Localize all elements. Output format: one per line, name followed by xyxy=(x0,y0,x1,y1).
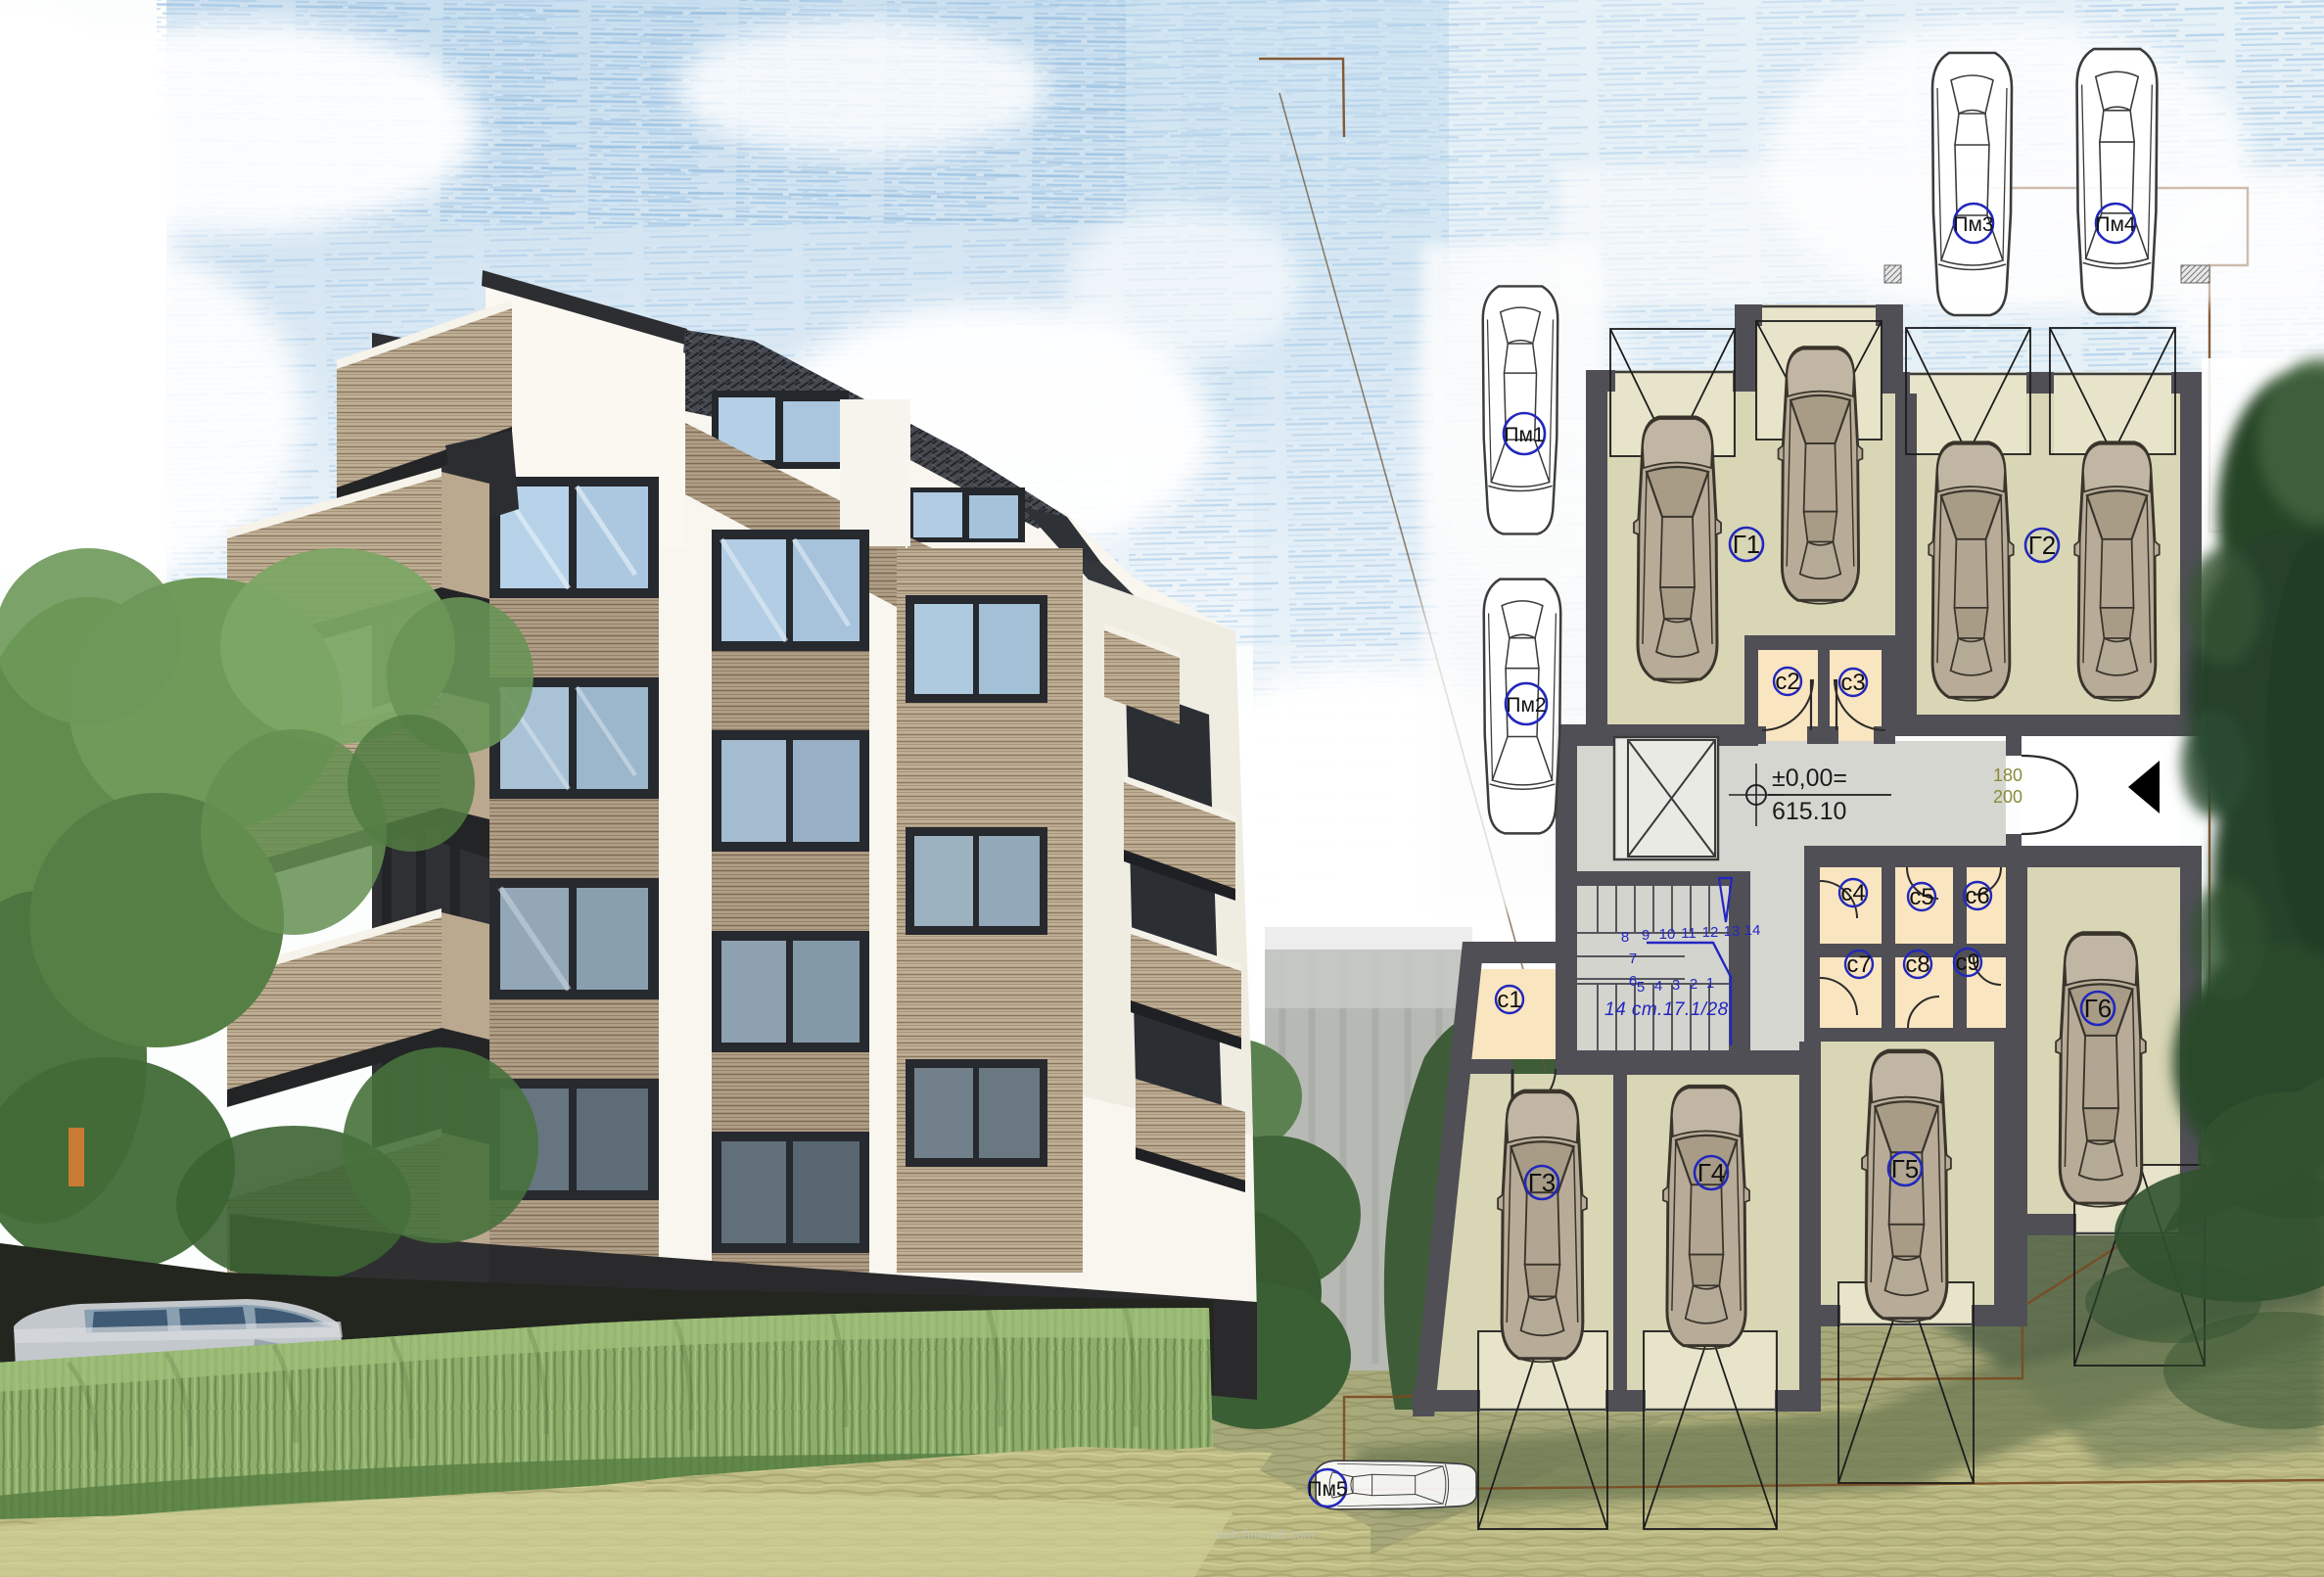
svg-text:Г5: Г5 xyxy=(1891,1154,1920,1183)
svg-text:с3: с3 xyxy=(1840,670,1865,696)
svg-text:7: 7 xyxy=(1629,951,1637,967)
svg-text:9: 9 xyxy=(1642,927,1650,944)
svg-text:с1: с1 xyxy=(1497,987,1521,1013)
svg-text:Пм1: Пм1 xyxy=(1504,424,1544,446)
svg-text:10: 10 xyxy=(1659,926,1676,943)
svg-text:4: 4 xyxy=(1654,978,1662,995)
svg-text:8: 8 xyxy=(1621,929,1629,946)
svg-text:с9: с9 xyxy=(1955,950,1979,976)
svg-text:2: 2 xyxy=(1690,976,1697,993)
svg-text:Пм2: Пм2 xyxy=(1506,694,1546,717)
svg-text:14 ст.17.1/28: 14 ст.17.1/28 xyxy=(1604,999,1729,1020)
svg-text:180: 180 xyxy=(1993,765,2022,785)
svg-text:Г6: Г6 xyxy=(2084,994,2113,1023)
svg-text:13: 13 xyxy=(1724,923,1741,940)
svg-text:Пм5: Пм5 xyxy=(1307,1478,1347,1501)
svg-text:с7: с7 xyxy=(1846,951,1871,978)
svg-text:3: 3 xyxy=(1672,977,1680,994)
svg-text:Г4: Г4 xyxy=(1697,1158,1726,1187)
svg-text:с8: с8 xyxy=(1905,951,1929,978)
svg-text:Г1: Г1 xyxy=(1733,530,1761,559)
svg-text:с4: с4 xyxy=(1840,880,1865,906)
svg-text:Г3: Г3 xyxy=(1528,1168,1557,1197)
svg-text:5: 5 xyxy=(1637,979,1645,996)
svg-text:1: 1 xyxy=(1706,975,1714,992)
svg-text:с6: с6 xyxy=(1965,883,1989,909)
svg-text:с5: с5 xyxy=(1909,884,1933,910)
svg-text:Пм4: Пм4 xyxy=(2095,213,2136,236)
svg-text:с2: с2 xyxy=(1775,669,1799,695)
svg-text:12: 12 xyxy=(1702,924,1719,941)
svg-text:Пм3: Пм3 xyxy=(1953,213,1993,236)
svg-text:615.10: 615.10 xyxy=(1772,798,1846,825)
svg-text:stolichniimoti.com: stolichniimoti.com xyxy=(1214,1527,1315,1542)
svg-text:Г2: Г2 xyxy=(2028,531,2057,560)
svg-text:11: 11 xyxy=(1681,925,1697,942)
svg-text:±0,00=: ±0,00= xyxy=(1772,765,1847,792)
svg-text:200: 200 xyxy=(1993,787,2022,807)
svg-text:14: 14 xyxy=(1744,922,1761,939)
